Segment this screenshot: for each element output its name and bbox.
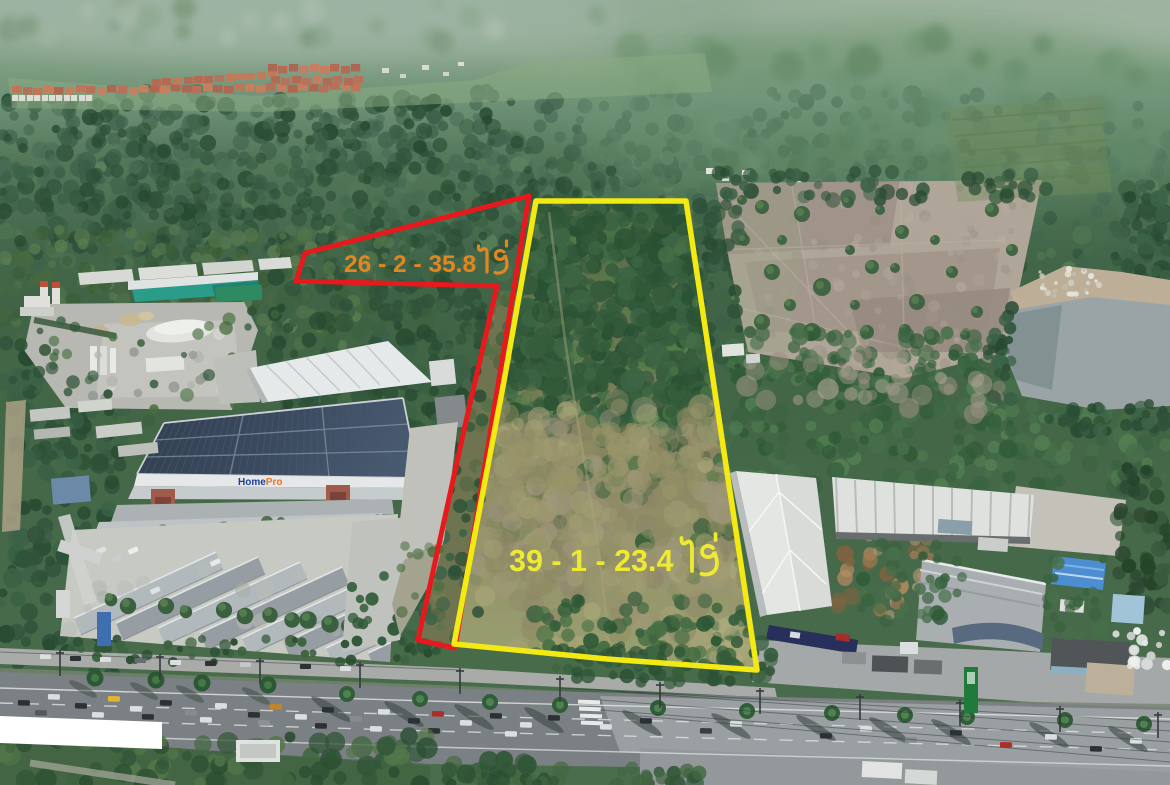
svg-text:HomePro: HomePro bbox=[238, 477, 282, 488]
